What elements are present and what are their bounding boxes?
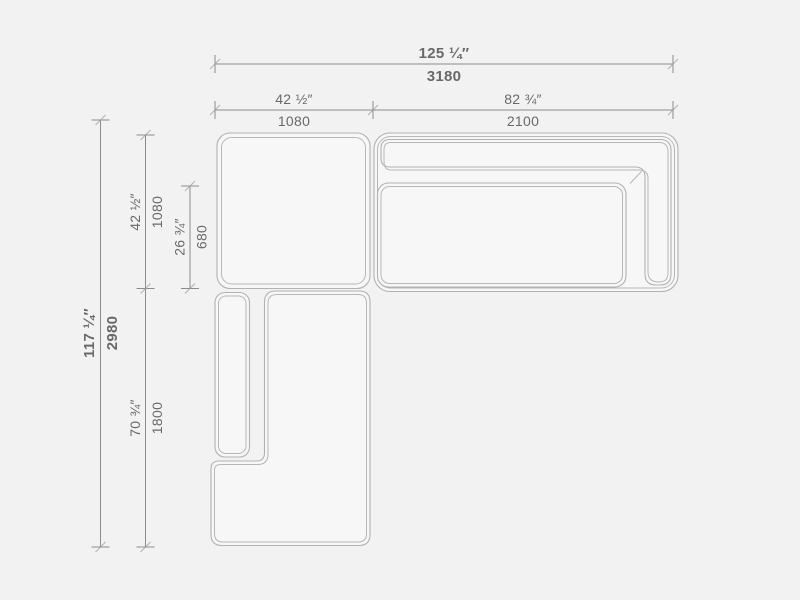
dim-overall-depth: 117 ¼″ 2980 bbox=[81, 115, 121, 552]
dim-left-depth-inch: 42 ½″ bbox=[127, 193, 143, 231]
dim-left-depth-mm: 1080 bbox=[149, 196, 165, 228]
dim-module-widths: 42 ½″ 1080 82 ¾″ 2100 bbox=[210, 91, 678, 129]
chaise-armrest bbox=[215, 293, 250, 458]
drawing-canvas: 125 ¼″ 3180 42 ½″ 1080 82 ¾″ 2100 117 ¼″… bbox=[0, 0, 800, 600]
dim-overall-depth-mm: 2980 bbox=[104, 316, 121, 351]
dim-left-depth-and-chaise: 42 ½″ 1080 70 ¾″ 1800 bbox=[127, 130, 165, 552]
dim-seat-depth: 26 ¾″ 680 bbox=[172, 181, 210, 294]
dim-overall-width: 125 ¼″ 3180 bbox=[210, 45, 678, 85]
dimensions-group: 125 ¼″ 3180 42 ½″ 1080 82 ¾″ 2100 117 ¼″… bbox=[81, 45, 678, 552]
dim-left-width-inch: 42 ½″ bbox=[275, 91, 313, 107]
dim-chaise-length-inch: 70 ¾″ bbox=[127, 399, 143, 437]
sofa-dimension-drawing: 125 ¼″ 3180 42 ½″ 1080 82 ¾″ 2100 117 ¼″… bbox=[0, 0, 800, 600]
module-corner-seat bbox=[217, 133, 370, 289]
dim-seat-depth-mm: 680 bbox=[194, 225, 210, 249]
dim-overall-width-mm: 3180 bbox=[427, 68, 462, 85]
sofa-seat-cushion bbox=[378, 183, 627, 287]
dim-overall-depth-inch: 117 ¼″ bbox=[81, 308, 98, 358]
dim-right-width-inch: 82 ¾″ bbox=[504, 91, 542, 107]
dim-seat-depth-inch: 26 ¾″ bbox=[172, 218, 188, 256]
module-chaise bbox=[211, 291, 370, 546]
corner-seat-outline bbox=[217, 133, 370, 289]
module-right-sofa bbox=[374, 133, 678, 292]
dim-chaise-length-mm: 1800 bbox=[149, 402, 165, 434]
dim-left-width-mm: 1080 bbox=[278, 113, 310, 129]
furniture-group bbox=[211, 133, 678, 546]
dim-right-width-mm: 2100 bbox=[507, 113, 539, 129]
dim-overall-width-inch: 125 ¼″ bbox=[419, 45, 470, 62]
